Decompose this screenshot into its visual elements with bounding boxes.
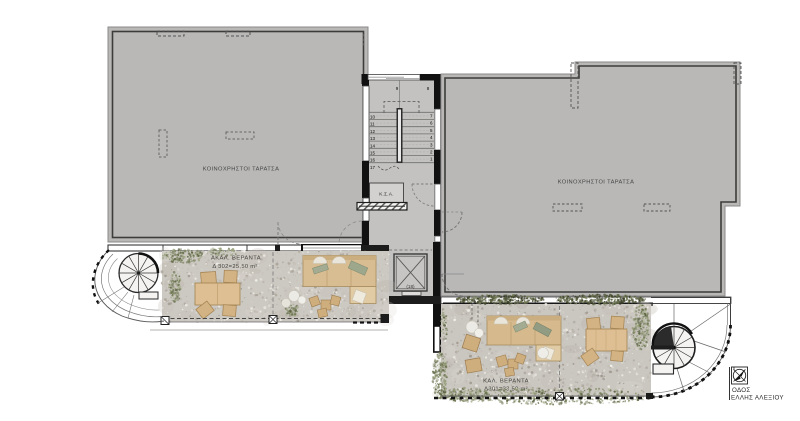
svg-text:ΑΚΑΛ. ΒΕΡΑΝΤΑ: ΑΚΑΛ. ΒΕΡΑΝΤΑ (211, 256, 261, 262)
svg-text:14: 14 (370, 143, 376, 148)
svg-text:12: 12 (370, 129, 376, 134)
svg-text:15: 15 (370, 151, 376, 156)
svg-text:Β: Β (733, 367, 735, 371)
svg-text:ΚΟΙΝΟΧΡΗΣΤΟΙ ΤΑΡΑΤΣΑ: ΚΟΙΝΟΧΡΗΣΤΟΙ ΤΑΡΑΤΣΑ (558, 180, 635, 186)
svg-text:11: 11 (370, 122, 375, 127)
svg-text:13: 13 (370, 136, 376, 141)
svg-text:ΚΑΛ. ΒΕΡΑΝΤΑ: ΚΑΛ. ΒΕΡΑΝΤΑ (483, 379, 529, 385)
svg-text:16: 16 (370, 158, 376, 163)
svg-text:ΚΟΙΝΟΧΡΗΣΤΟΙ ΤΑΡΑΤΣΑ: ΚΟΙΝΟΧΡΗΣΤΟΙ ΤΑΡΑΤΣΑ (203, 167, 280, 173)
svg-text:ΟΔΟΣ: ΟΔΟΣ (732, 387, 751, 394)
svg-text:Κ.Σ.Α.: Κ.Σ.Α. (379, 192, 394, 197)
svg-text:ΕΛΛΗΣ ΑΛΕΞΙΟΥ: ΕΛΛΗΣ ΑΛΕΞΙΟΥ (731, 395, 784, 402)
svg-text:Δ 302=25,50 m²: Δ 302=25,50 m² (212, 264, 257, 270)
svg-text:10: 10 (370, 115, 376, 120)
svg-text:(18): (18) (406, 284, 415, 289)
svg-text:17: 17 (370, 165, 376, 170)
